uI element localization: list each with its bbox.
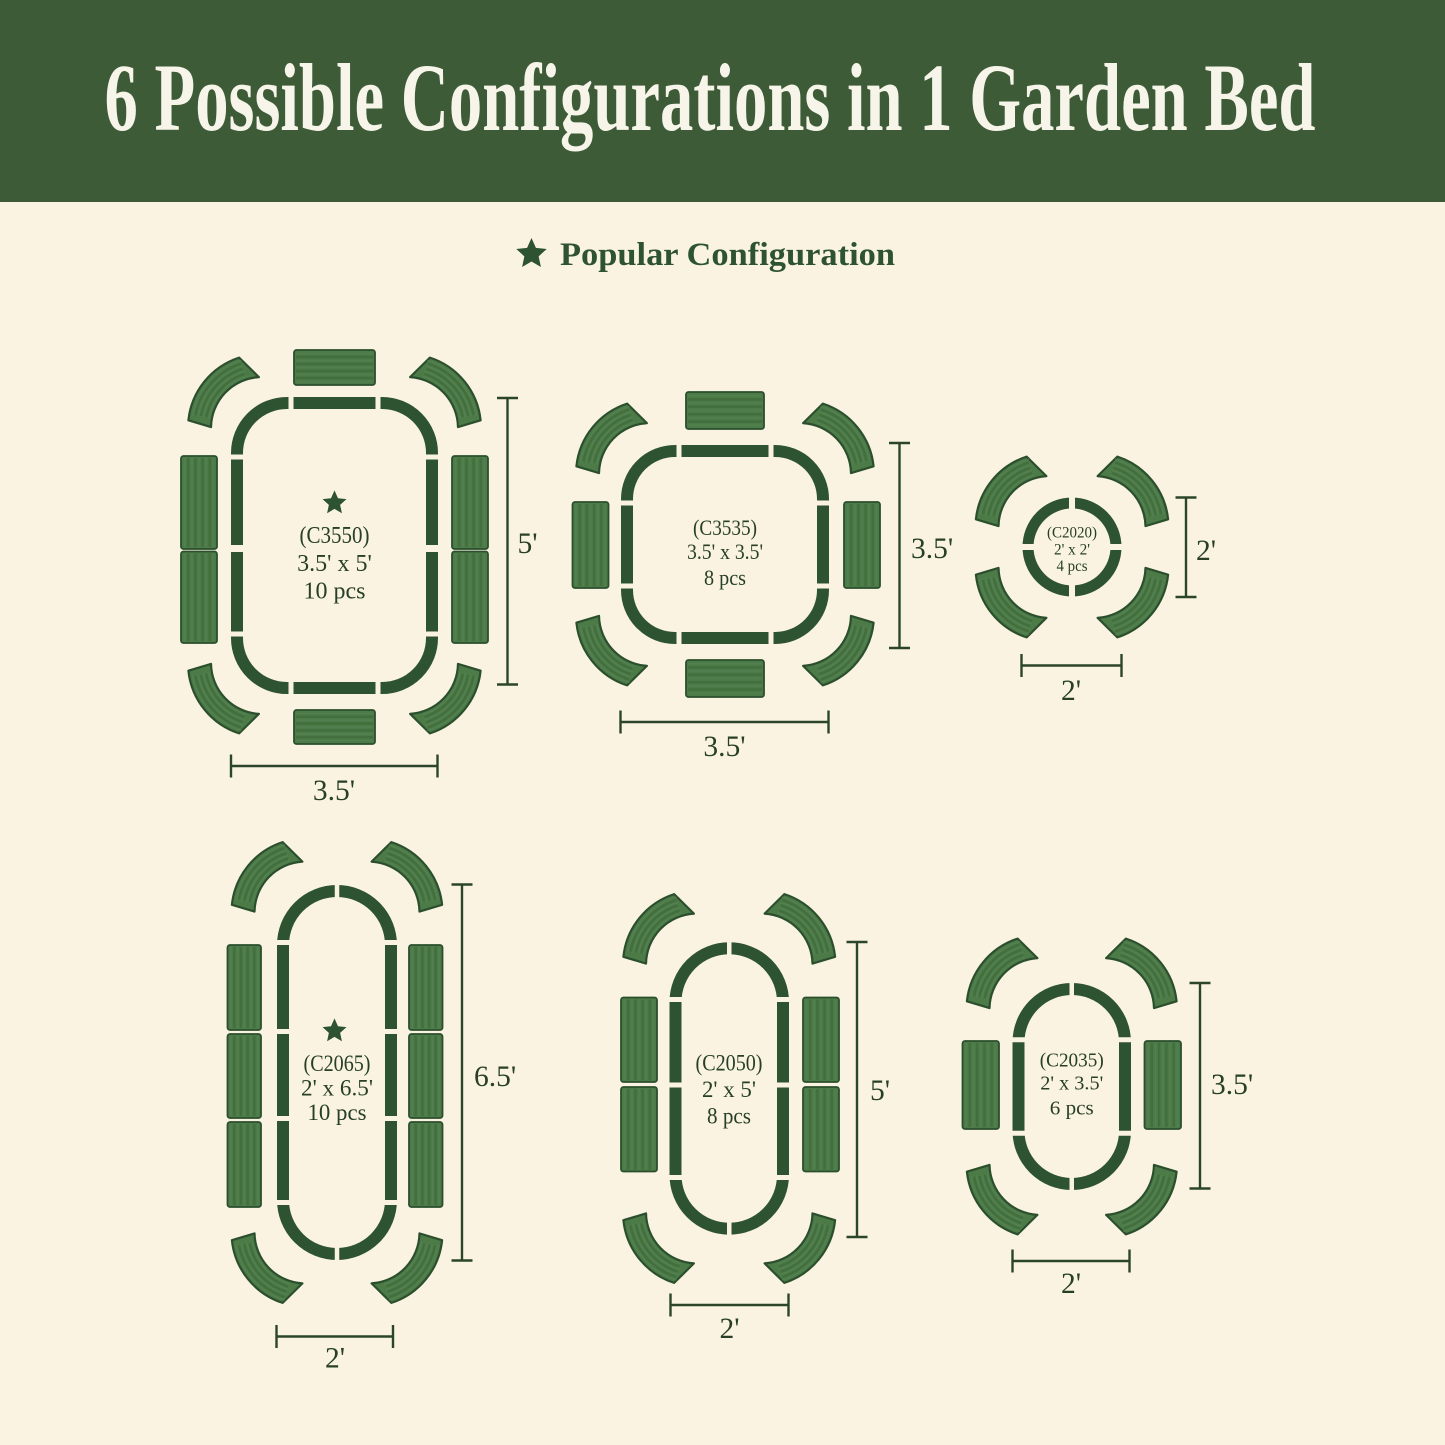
svg-text:2' x 5': 2' x 5' — [702, 1077, 756, 1102]
svg-text:2': 2' — [1196, 535, 1216, 567]
svg-text:(C2035): (C2035) — [1040, 1050, 1104, 1072]
svg-text:3.5': 3.5' — [313, 775, 355, 807]
svg-text:5': 5' — [518, 528, 538, 560]
svg-text:3.5': 3.5' — [703, 731, 745, 763]
svg-text:2': 2' — [1061, 1268, 1081, 1300]
svg-text:4 pcs: 4 pcs — [1057, 558, 1088, 575]
svg-text:Popular Configuration: Popular Configuration — [560, 237, 895, 273]
svg-text:10 pcs: 10 pcs — [304, 579, 366, 605]
svg-text:(C2020): (C2020) — [1047, 525, 1097, 542]
svg-text:3.5': 3.5' — [911, 533, 953, 565]
svg-text:(C3535): (C3535) — [693, 515, 757, 540]
svg-text:2': 2' — [719, 1313, 739, 1345]
svg-text:3.5': 3.5' — [1211, 1069, 1253, 1101]
svg-text:10 pcs: 10 pcs — [308, 1100, 367, 1125]
svg-text:2' x 6.5': 2' x 6.5' — [301, 1076, 373, 1101]
svg-text:6.5': 6.5' — [474, 1061, 516, 1093]
svg-text:8 pcs: 8 pcs — [707, 1104, 751, 1129]
svg-text:3.5' x 5': 3.5' x 5' — [297, 551, 372, 577]
svg-text:5': 5' — [870, 1075, 890, 1107]
svg-text:2' x 3.5': 2' x 3.5' — [1040, 1073, 1103, 1095]
svg-text:6 Possible Configurations in 1: 6 Possible Configurations in 1 Garden Be… — [105, 44, 1316, 151]
svg-text:3.5' x 3.5': 3.5' x 3.5' — [687, 539, 763, 564]
svg-text:(C2065): (C2065) — [304, 1051, 371, 1076]
svg-text:2': 2' — [325, 1343, 345, 1375]
svg-text:6 pcs: 6 pcs — [1050, 1098, 1094, 1120]
svg-text:(C2050): (C2050) — [696, 1051, 763, 1076]
svg-text:2' x 2': 2' x 2' — [1054, 542, 1090, 559]
svg-text:2': 2' — [1061, 675, 1081, 707]
svg-text:(C3550): (C3550) — [300, 523, 370, 549]
svg-text:8 pcs: 8 pcs — [704, 565, 746, 590]
